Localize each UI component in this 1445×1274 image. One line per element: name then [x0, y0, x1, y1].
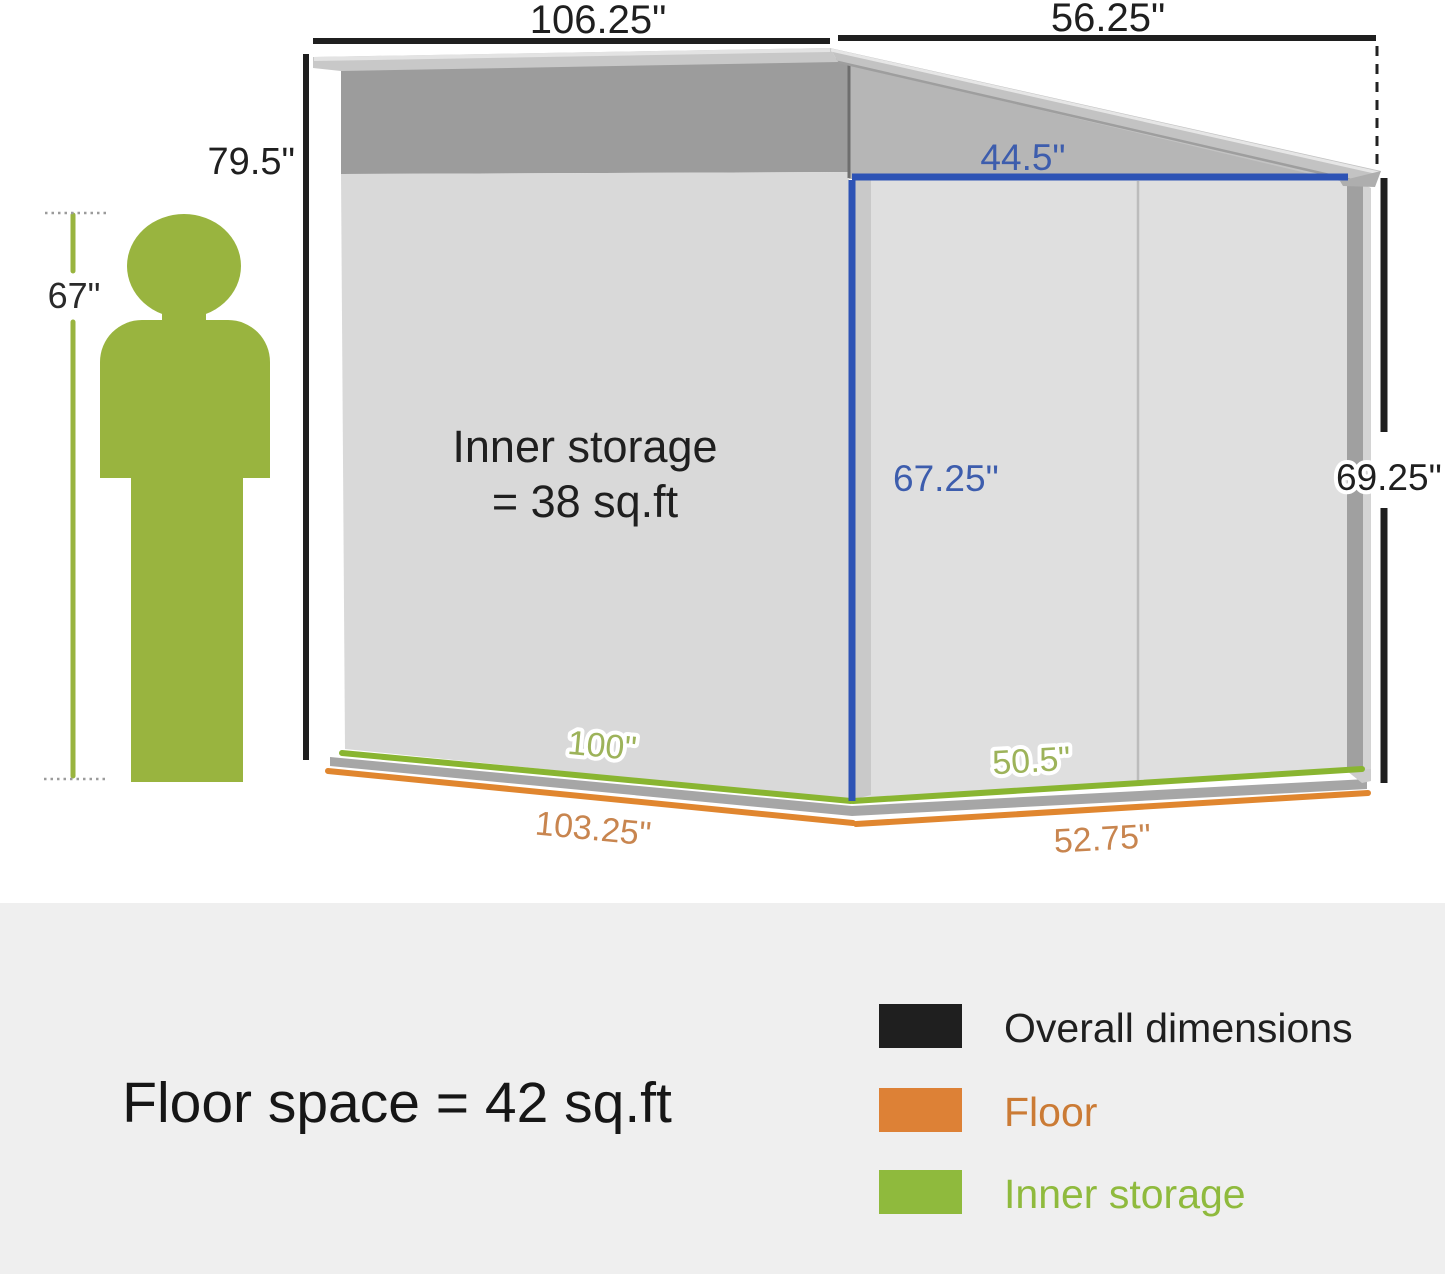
product-dimension-diagram: 106.25" 56.25" 79.5" 69.25" 67" 44.5" 67…: [0, 0, 1445, 1274]
label-overall-side-width: 106.25": [530, 0, 667, 42]
label-person-height: 67": [48, 275, 101, 316]
legend-swatch-overall: [879, 1004, 962, 1048]
label-inner-height: 67.25": [893, 458, 999, 499]
label-inner-side-length: 100": [566, 724, 638, 768]
person-legs: [131, 440, 243, 782]
label-overall-front-width: 56.25": [1051, 0, 1165, 40]
legend-swatch-floor: [879, 1088, 962, 1132]
legend-label-overall: Overall dimensions: [1004, 1005, 1353, 1051]
inner-storage-text-line2: = 38 sq.ft: [492, 476, 679, 527]
label-overall-height-left: 79.5": [208, 141, 295, 183]
label-inner-front-width: 44.5": [980, 137, 1065, 178]
side-wall-upper-band: [341, 58, 849, 174]
legend-swatch-inner-storage: [879, 1170, 962, 1214]
label-overall-height-right: 69.25": [1336, 457, 1442, 498]
label-inner-front-length: 50.5": [991, 740, 1071, 783]
floor-space-text: Floor space = 42 sq.ft: [122, 1071, 672, 1135]
front-wall-corner-shade: [855, 179, 871, 799]
inner-storage-text-line1: Inner storage: [452, 421, 717, 472]
diagram-canvas: 106.25" 56.25" 79.5" 69.25" 67" 44.5" 67…: [0, 0, 1445, 1274]
legend-label-inner-storage: Inner storage: [1004, 1171, 1246, 1217]
label-floor-front-length: 52.75": [1053, 817, 1152, 861]
legend-label-floor: Floor: [1004, 1089, 1097, 1135]
